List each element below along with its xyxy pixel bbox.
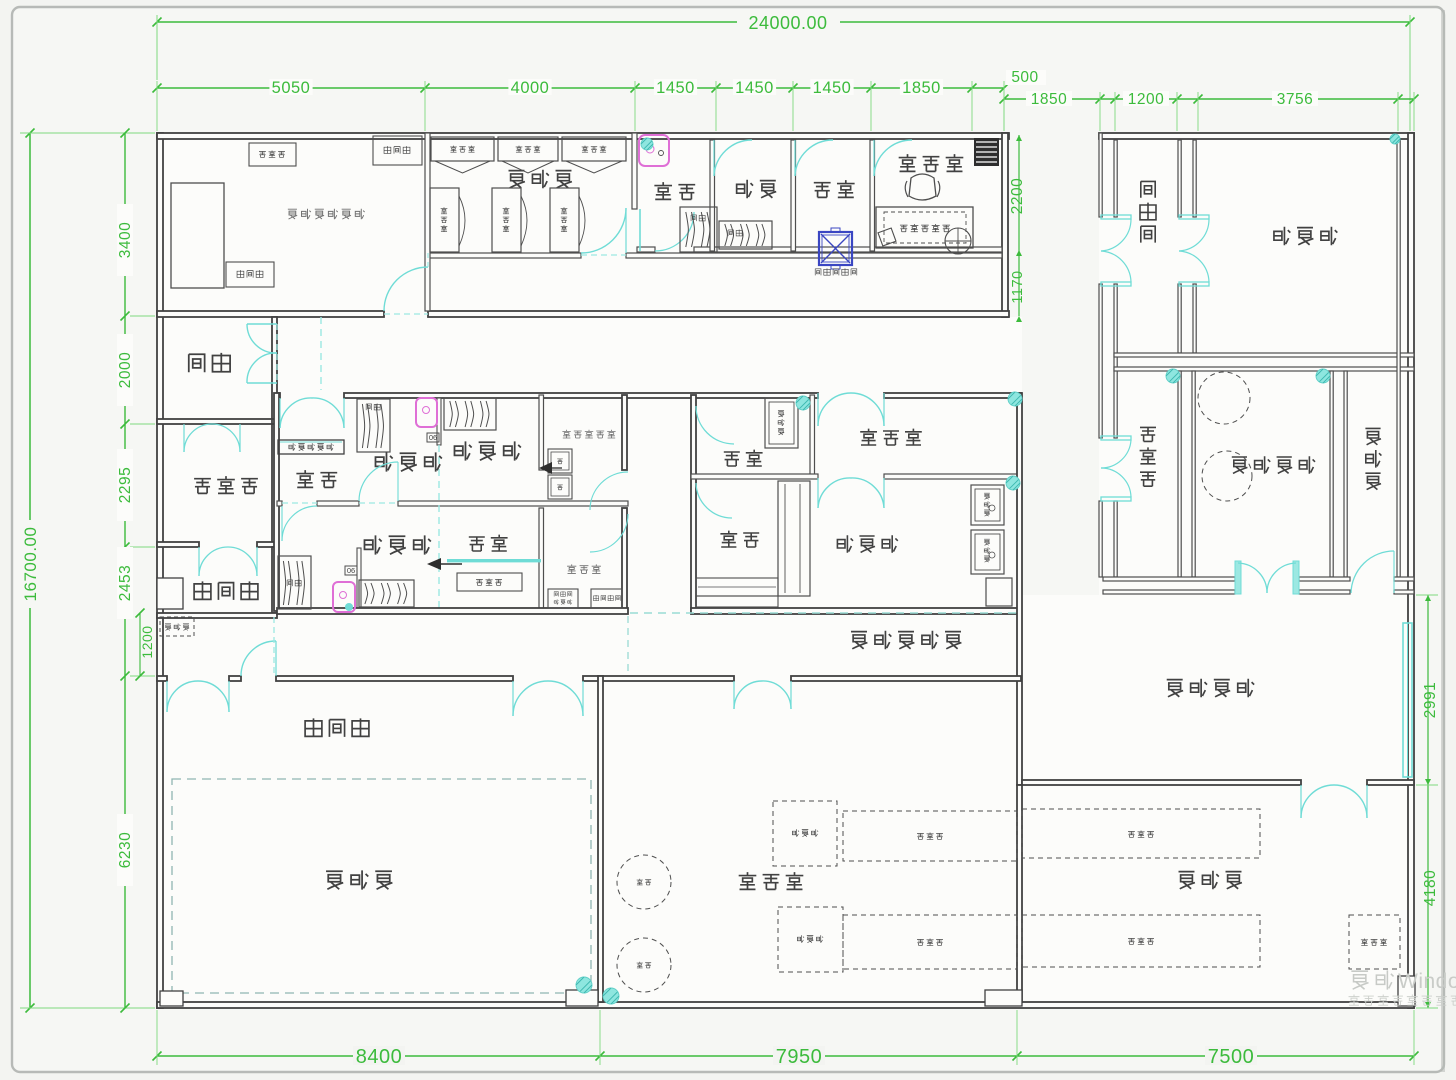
svg-text:24000.00: 24000.00 xyxy=(748,13,827,33)
svg-text:16700.00: 16700.00 xyxy=(21,527,40,602)
svg-text:Windows: Windows xyxy=(1398,970,1456,993)
svg-text:2991: 2991 xyxy=(1422,682,1439,718)
svg-text:1200: 1200 xyxy=(139,625,155,658)
svg-text:7500: 7500 xyxy=(1208,1046,1255,1068)
svg-text:3400: 3400 xyxy=(117,222,134,258)
svg-text:500: 500 xyxy=(1011,69,1038,86)
svg-text:1450: 1450 xyxy=(656,79,695,97)
svg-text:7950: 7950 xyxy=(776,1046,823,1068)
svg-text:3756: 3756 xyxy=(1277,91,1313,108)
svg-text:1170: 1170 xyxy=(1010,270,1026,303)
svg-text:1850: 1850 xyxy=(902,79,941,97)
svg-text:6230: 6230 xyxy=(117,832,134,868)
svg-text:1450: 1450 xyxy=(813,79,852,97)
svg-text:5050: 5050 xyxy=(272,79,311,97)
svg-text:1850: 1850 xyxy=(1031,91,1067,108)
svg-text:4180: 4180 xyxy=(1422,870,1439,906)
svg-text:1450: 1450 xyxy=(735,79,774,97)
svg-text:8400: 8400 xyxy=(356,1046,403,1068)
svg-text:06: 06 xyxy=(429,433,437,442)
svg-text:1200: 1200 xyxy=(1128,91,1164,108)
svg-text:4000: 4000 xyxy=(511,79,550,97)
svg-text:2295: 2295 xyxy=(117,467,134,503)
svg-text:2453: 2453 xyxy=(117,565,134,601)
svg-text:2200: 2200 xyxy=(1009,178,1026,214)
svg-text:06: 06 xyxy=(347,566,355,575)
svg-text:2000: 2000 xyxy=(117,352,134,388)
